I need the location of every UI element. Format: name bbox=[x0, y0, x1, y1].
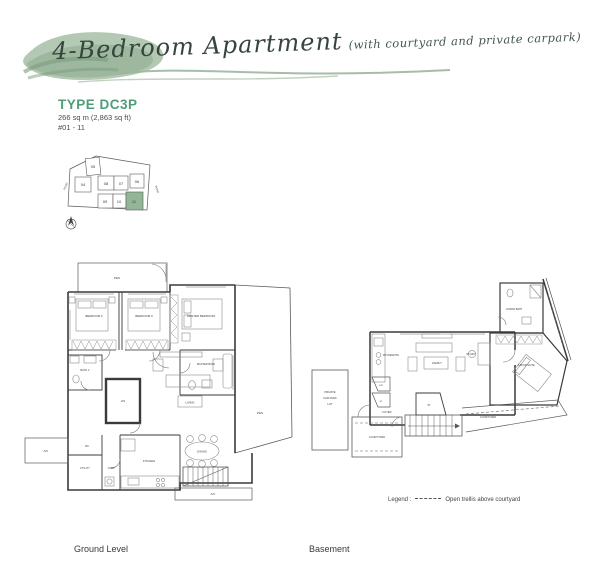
stairs-basement bbox=[405, 393, 462, 436]
bed-icon-master bbox=[182, 299, 222, 341]
room-label-bedroom3: BEDROOM 3 bbox=[135, 314, 153, 318]
pes-top-area bbox=[78, 263, 167, 292]
unit-area-label: 266 sq m (2,863 sq ft) bbox=[58, 113, 131, 122]
junior-bath-fixtures bbox=[507, 285, 541, 324]
ground-level-floorplan: PES BEDROOM 2 BEDROOM 3 MASTER BEDROOM M… bbox=[20, 255, 305, 525]
washer-icon bbox=[105, 477, 114, 486]
room-label-kitchenette: KITCHENETTE bbox=[383, 355, 399, 357]
room-label-foyer: FOYER bbox=[383, 410, 392, 414]
room-label-st-stairs: ST bbox=[427, 404, 431, 407]
room-label-pes-top: PES bbox=[114, 276, 120, 280]
kitchenette-counter bbox=[372, 334, 385, 382]
road-label-right: ROAD bbox=[154, 185, 160, 193]
room-label-yard: YARD bbox=[107, 466, 114, 470]
block-number: 04 bbox=[81, 182, 86, 187]
unit-stack-label: #01 - 11 bbox=[58, 123, 85, 132]
window-marks bbox=[70, 287, 233, 390]
pes-right-area bbox=[235, 285, 292, 453]
north-compass-icon bbox=[66, 216, 76, 229]
room-label-courtyard-left: COURTYARD bbox=[369, 435, 385, 439]
room-label-wc: WC bbox=[85, 445, 89, 448]
room-label-dining: DINING bbox=[197, 450, 207, 454]
block-number: 07 bbox=[119, 181, 124, 186]
legend: Legend :Open trellis above courtyard bbox=[388, 497, 520, 503]
room-label-bedroom2: BEDROOM 2 bbox=[85, 314, 103, 318]
room-label-family: FAMILY bbox=[432, 361, 442, 365]
block-number: 09 bbox=[103, 199, 108, 204]
room-label-carpark-3: LOT bbox=[327, 402, 333, 406]
room-label-living: LIVING bbox=[185, 401, 194, 405]
room-label-junior-bath: JUNIOR BATH bbox=[506, 308, 523, 311]
room-label-master-bath: MASTER BATH bbox=[197, 362, 215, 366]
ground-room-labels: PES BEDROOM 2 BEDROOM 3 MASTER BEDROOM M… bbox=[44, 276, 263, 496]
kitchen-counter bbox=[121, 439, 179, 488]
legend-label: Legend : bbox=[388, 497, 411, 503]
unit-type-label: TYPE DC3P bbox=[58, 97, 138, 112]
basement-floorplan: KITCHENETTE FAMILY STUDY JUNIOR BATH JUN… bbox=[310, 265, 570, 480]
block-number: 10 bbox=[117, 199, 122, 204]
room-label-master-bedroom: MASTER BEDROOM bbox=[187, 314, 215, 318]
room-label-pes-right: PES bbox=[257, 411, 263, 415]
room-label-junior-suite: JUNIOR SUITE bbox=[517, 364, 535, 367]
block-number: 06 bbox=[135, 179, 140, 184]
room-label-kitchen: KITCHEN bbox=[143, 459, 155, 463]
family-furniture bbox=[408, 334, 465, 371]
road-label-left: ROAD bbox=[62, 182, 69, 191]
caption-basement: Basement bbox=[309, 544, 350, 554]
room-label-study: STUDY bbox=[466, 352, 476, 356]
room-label-bath2: BATH 2 bbox=[81, 368, 90, 372]
room-label-carpark-1: PRIVATE bbox=[324, 390, 335, 394]
title-subtitle: (with courtyard and private carpark) bbox=[348, 30, 581, 52]
dashed-line-icon bbox=[415, 498, 441, 499]
legend-item: Open trellis above courtyard bbox=[445, 497, 520, 503]
room-label-ac-bottom: A/C bbox=[211, 492, 216, 496]
room-label-utility: UTILITY bbox=[80, 466, 90, 470]
block-number: 05 bbox=[91, 164, 96, 169]
room-label-courtyard-right: COURTYARD bbox=[480, 415, 496, 419]
room-label-carpark-2: CAR PARK bbox=[323, 396, 337, 400]
master-bath-fixtures bbox=[189, 354, 232, 389]
site-key-plan: 05 04 08 07 06 09 10 11 ROAD ROAD bbox=[58, 150, 162, 236]
living-furniture bbox=[153, 352, 223, 407]
private-carpark-area bbox=[312, 370, 348, 450]
caption-ground-level: Ground Level bbox=[74, 544, 128, 554]
door-arcs bbox=[81, 350, 190, 468]
block-number: 08 bbox=[104, 181, 109, 186]
room-label-st-closet: ST bbox=[380, 401, 383, 403]
basement-room-labels: KITCHENETTE FAMILY STUDY JUNIOR BATH JUN… bbox=[323, 308, 535, 439]
room-label-hs: HS bbox=[121, 399, 125, 403]
room-label-dw: DW bbox=[379, 385, 384, 387]
room-label-ac-left: A/C bbox=[44, 449, 49, 453]
brochure-page: 4-Bedroom Apartment(with courtyard and p… bbox=[0, 0, 600, 579]
